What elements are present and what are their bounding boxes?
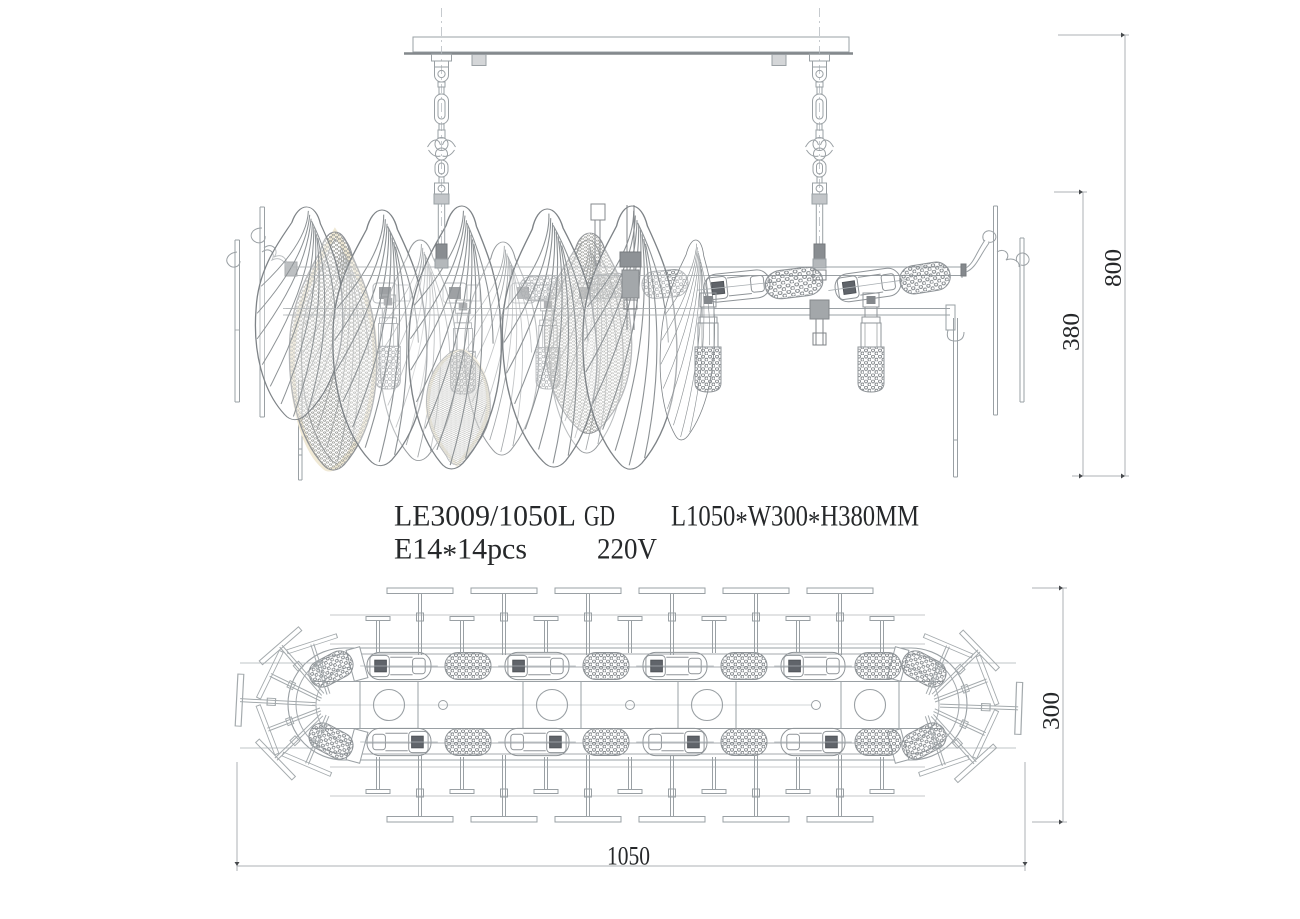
- svg-text:E14*14pcs: E14*14pcs: [394, 533, 527, 572]
- svg-text:800: 800: [1101, 249, 1127, 287]
- svg-text:1050: 1050: [607, 842, 650, 871]
- svg-text:380: 380: [1059, 313, 1085, 351]
- svg-text:GD: GD: [584, 500, 615, 533]
- svg-text:300: 300: [1039, 692, 1065, 730]
- svg-text:220V: 220V: [597, 533, 657, 566]
- svg-text:LE3009/1050L: LE3009/1050L: [394, 500, 576, 533]
- svg-text:L1050*W300*H380MM: L1050*W300*H380MM: [671, 500, 919, 539]
